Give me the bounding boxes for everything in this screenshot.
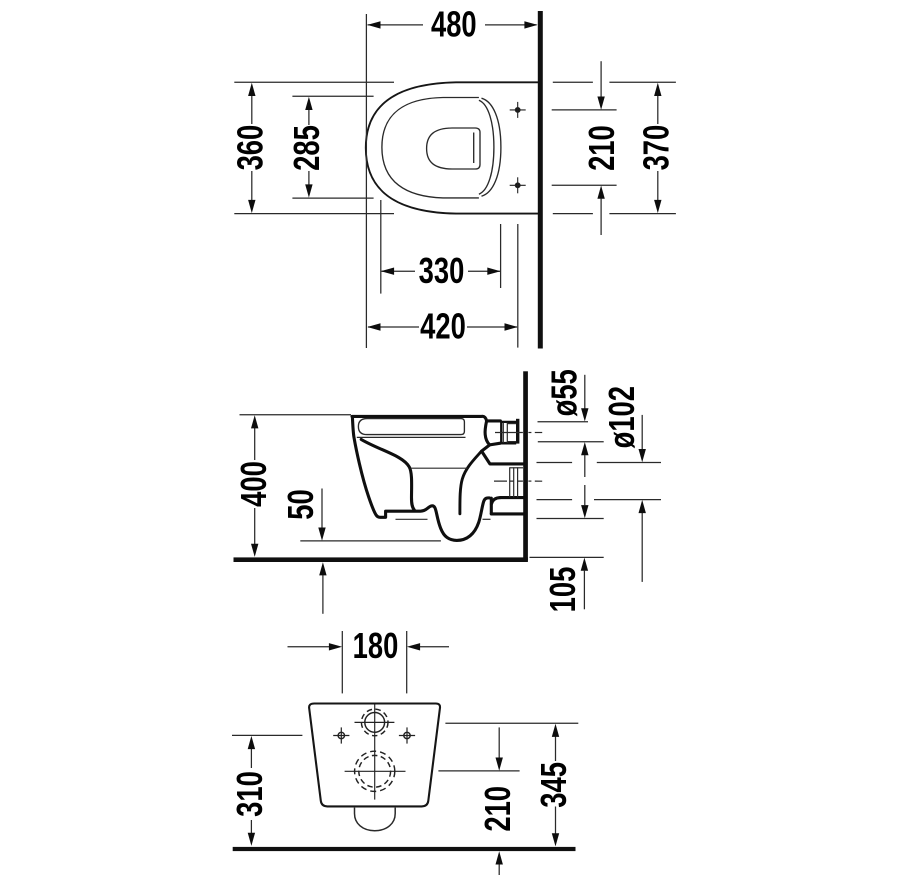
svg-text:420: 420 bbox=[420, 306, 466, 347]
svg-text:370: 370 bbox=[636, 125, 677, 171]
svg-text:210: 210 bbox=[582, 125, 623, 171]
svg-text:345: 345 bbox=[533, 762, 574, 808]
svg-text:ø55: ø55 bbox=[544, 369, 585, 416]
svg-text:360: 360 bbox=[230, 125, 271, 171]
svg-text:180: 180 bbox=[353, 626, 399, 667]
svg-text:285: 285 bbox=[286, 125, 327, 171]
svg-text:330: 330 bbox=[419, 250, 465, 291]
svg-text:310: 310 bbox=[229, 771, 270, 817]
svg-text:105: 105 bbox=[542, 567, 583, 613]
svg-text:210: 210 bbox=[477, 786, 518, 832]
svg-text:400: 400 bbox=[233, 461, 274, 507]
svg-text:50: 50 bbox=[280, 489, 321, 519]
svg-text:480: 480 bbox=[431, 4, 477, 45]
svg-text:ø102: ø102 bbox=[601, 386, 642, 448]
